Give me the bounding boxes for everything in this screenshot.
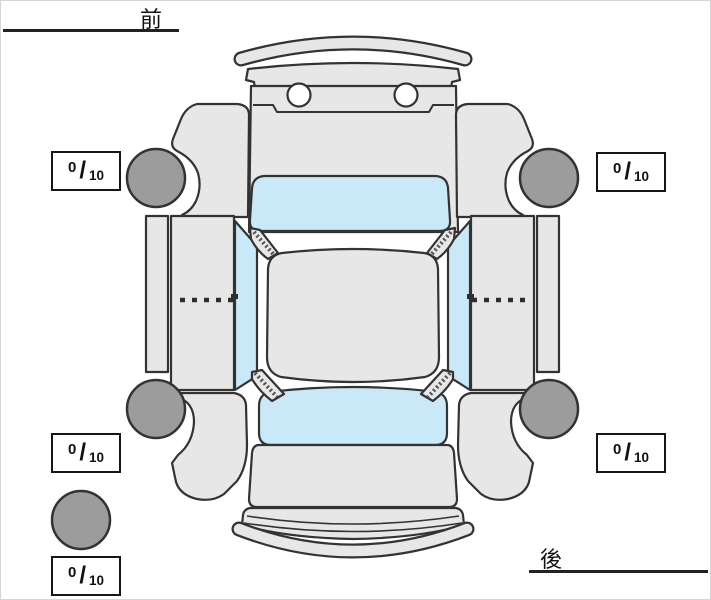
headlight-right-icon <box>395 84 418 107</box>
spare-tire-icon <box>52 491 110 549</box>
headlight-left-icon <box>288 84 311 107</box>
score-value: 0 <box>613 441 621 458</box>
score-max: 10 <box>89 573 104 588</box>
front-fender-left <box>172 104 249 217</box>
door-panel-left <box>171 216 234 390</box>
rocker-panel-left <box>146 216 168 372</box>
score-box-rear-right: 0 / 10 <box>596 433 666 473</box>
trunk-lid <box>249 445 457 507</box>
score-box-rear-left: 0 / 10 <box>51 433 121 473</box>
score-max: 10 <box>89 450 104 465</box>
score-value: 0 <box>68 441 76 458</box>
score-box-front-left: 0 / 10 <box>51 151 121 191</box>
roof <box>267 249 439 382</box>
tire-front-right <box>520 149 578 207</box>
score-separator: / <box>624 158 631 186</box>
front-bumper <box>241 43 465 59</box>
score-box-spare: 0 / 10 <box>51 556 121 596</box>
front-grille-strip <box>246 63 460 88</box>
score-max: 10 <box>634 169 649 184</box>
side-window-left <box>235 221 257 390</box>
tire-front-left <box>127 149 185 207</box>
b-pillar-mark-left <box>231 294 238 299</box>
tire-rear-left <box>127 380 185 438</box>
score-value: 0 <box>68 159 76 176</box>
score-value: 0 <box>613 160 621 177</box>
vehicle-condition-panel: 前 後 <box>0 0 711 600</box>
score-box-front-right: 0 / 10 <box>596 152 666 192</box>
score-separator: / <box>79 562 86 590</box>
tire-rear-right <box>520 380 578 438</box>
score-value: 0 <box>68 564 76 581</box>
score-separator: / <box>79 439 86 467</box>
score-max: 10 <box>89 168 104 183</box>
car-top-view-diagram <box>1 1 711 600</box>
windshield <box>250 176 450 231</box>
score-max: 10 <box>634 450 649 465</box>
score-separator: / <box>624 439 631 467</box>
rear-window <box>259 387 447 445</box>
score-separator: / <box>79 157 86 185</box>
